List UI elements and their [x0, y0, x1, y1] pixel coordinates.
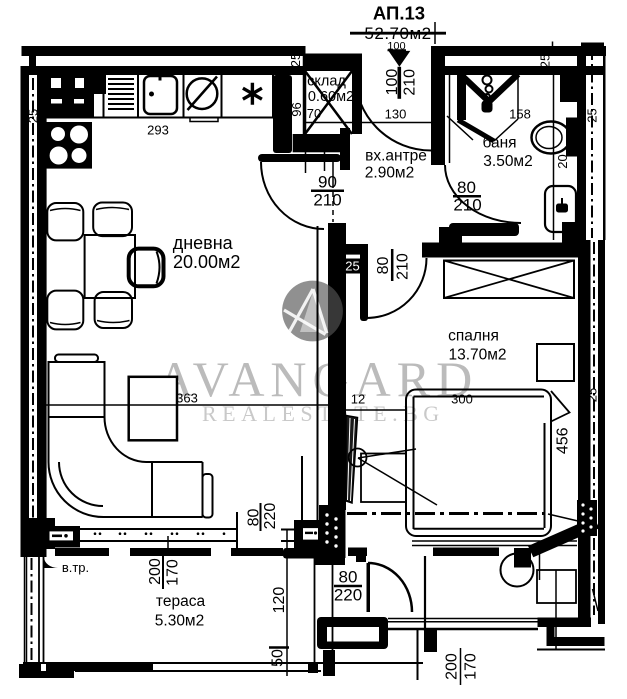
svg-text:25: 25	[26, 109, 41, 123]
svg-text:220: 220	[334, 586, 362, 605]
svg-text:210: 210	[402, 69, 419, 96]
svg-text:25: 25	[288, 53, 303, 67]
svg-text:456: 456	[555, 427, 572, 454]
svg-text:дневна: дневна	[173, 233, 234, 253]
svg-text:200: 200	[444, 653, 461, 680]
svg-text:300: 300	[451, 392, 473, 407]
svg-text:363: 363	[176, 391, 198, 406]
svg-text:100: 100	[387, 41, 405, 53]
svg-text:100: 100	[384, 69, 401, 96]
svg-text:25: 25	[538, 54, 553, 68]
svg-text:20: 20	[555, 154, 570, 168]
svg-text:5.30м2: 5.30м2	[155, 613, 204, 630]
svg-text:170: 170	[165, 559, 182, 586]
svg-text:170: 170	[463, 653, 480, 680]
svg-text:тераса: тераса	[156, 593, 206, 610]
svg-text:20.00м2: 20.00м2	[173, 252, 240, 272]
svg-text:96: 96	[289, 102, 304, 116]
svg-text:АП.13: АП.13	[373, 3, 425, 24]
svg-text:спалня: спалня	[448, 328, 499, 345]
svg-text:80: 80	[246, 509, 263, 527]
svg-text:12: 12	[351, 392, 365, 407]
svg-text:25: 25	[345, 259, 359, 274]
svg-text:25: 25	[585, 388, 600, 402]
svg-text:210: 210	[313, 191, 341, 210]
svg-text:293: 293	[147, 123, 169, 138]
svg-text:склад: склад	[307, 74, 346, 90]
svg-text:158: 158	[509, 107, 531, 122]
svg-text:210: 210	[395, 253, 412, 280]
svg-text:баня: баня	[482, 135, 516, 152]
svg-text:200: 200	[147, 558, 164, 585]
svg-text:50: 50	[270, 649, 287, 667]
svg-text:3.50м2: 3.50м2	[483, 153, 532, 170]
svg-text:80: 80	[339, 568, 358, 587]
svg-text:130: 130	[385, 107, 407, 122]
svg-text:25: 25	[585, 108, 600, 122]
svg-text:120: 120	[271, 587, 288, 614]
svg-text:220: 220	[262, 503, 279, 530]
svg-text:вх.антре: вх.антре	[365, 148, 427, 165]
svg-text:80: 80	[457, 178, 476, 197]
svg-text:90: 90	[318, 173, 337, 192]
svg-text:210: 210	[453, 196, 481, 215]
svg-text:2.90м2: 2.90м2	[365, 165, 414, 182]
svg-text:в.тр.: в.тр.	[62, 560, 89, 575]
svg-text:80: 80	[375, 257, 392, 275]
svg-text:0.60м2: 0.60м2	[308, 89, 354, 105]
svg-text:13.70м2: 13.70м2	[448, 347, 506, 364]
svg-text:70: 70	[307, 106, 321, 121]
